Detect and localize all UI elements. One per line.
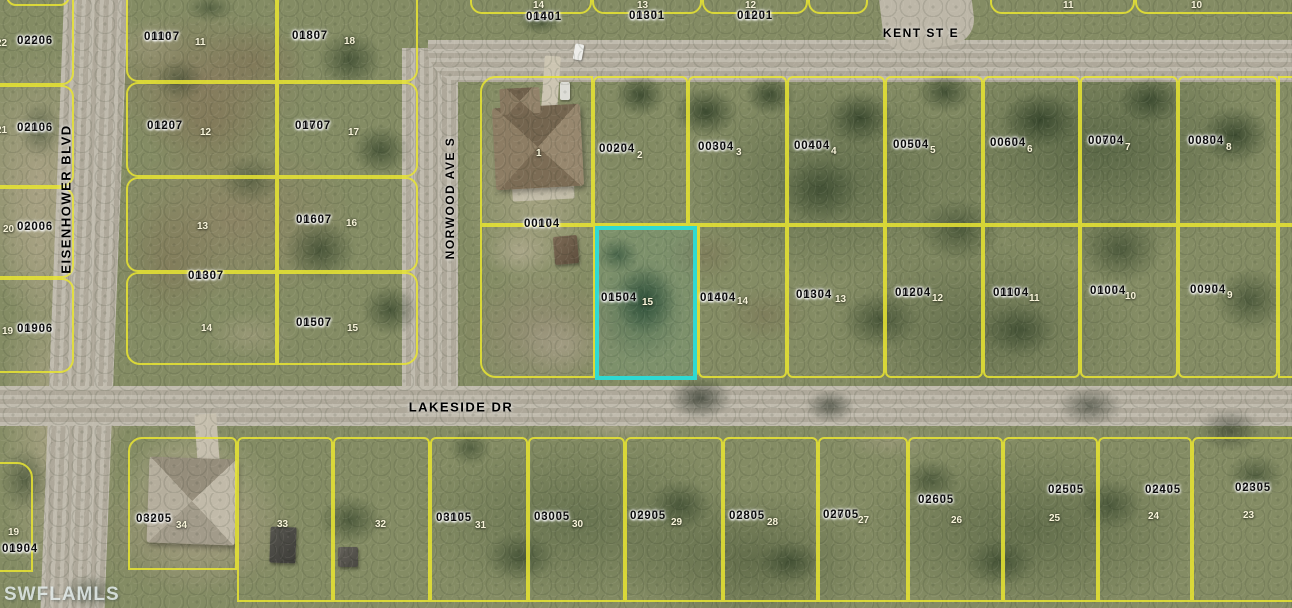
lot-number: 11 xyxy=(1029,293,1040,304)
lot-number: 15 xyxy=(642,297,653,308)
lot-number: 14 xyxy=(533,0,544,11)
lot-number: 1 xyxy=(536,148,542,159)
lot-number: 27 xyxy=(858,515,869,526)
parcel-boundary xyxy=(1098,437,1192,602)
lot-number: 13 xyxy=(197,221,208,232)
lot-number: 30 xyxy=(572,519,583,530)
lot-number: 9 xyxy=(1227,290,1233,301)
lot-number: 23 xyxy=(1243,510,1254,521)
lot-number: 31 xyxy=(475,520,486,531)
parcel-boundary xyxy=(6,0,70,6)
lot-number: 16 xyxy=(346,218,357,229)
lot-number: 10 xyxy=(1191,0,1202,11)
mls-watermark: SWFLAMLS xyxy=(4,584,120,606)
lot-number: 15 xyxy=(347,323,358,334)
road-label-lakeside-dr: LAKESIDE DR xyxy=(409,400,514,415)
lot-number: 4 xyxy=(831,146,837,157)
parcel-boundary xyxy=(126,272,277,365)
lot-number: 24 xyxy=(1148,511,1159,522)
lot-number: 11 xyxy=(195,37,206,48)
lot-number: 26 xyxy=(951,515,962,526)
lot-number: 13 xyxy=(835,294,846,305)
lot-number: 19 xyxy=(8,527,19,538)
lot-number: 25 xyxy=(1049,513,1060,524)
lot-number: 12 xyxy=(745,0,756,11)
road-label-kent-st-e: KENT ST E xyxy=(883,26,959,40)
parcel-boundary xyxy=(1135,0,1292,14)
lot-number: 18 xyxy=(344,36,355,47)
lot-number: 14 xyxy=(737,296,748,307)
lot-number: 11 xyxy=(1063,0,1074,11)
parcel-boundary xyxy=(1178,225,1278,378)
lot-number: 29 xyxy=(671,517,682,528)
lot-number: 10 xyxy=(1125,291,1136,302)
lot-number: 3 xyxy=(736,147,742,158)
satellite-parcel-map[interactable]: 0006602200006602100006602000006601900006… xyxy=(0,0,1292,608)
lot-number: 14 xyxy=(201,323,212,334)
lot-number: 17 xyxy=(348,127,359,138)
road-label-eisenhower-blvd: EISENHOWER BLVD xyxy=(59,124,74,273)
lot-number: 21 xyxy=(0,125,7,136)
lot-number: 5 xyxy=(930,145,936,156)
lot-number: 34 xyxy=(176,520,187,531)
road-label-norwood-ave-s: NORWOOD AVE S xyxy=(443,137,457,260)
lot-number: 19 xyxy=(2,326,13,337)
lot-number: 7 xyxy=(1125,142,1131,153)
lot-number: 33 xyxy=(277,519,288,530)
lot-number: 6 xyxy=(1027,144,1033,155)
lot-number: 2 xyxy=(637,150,643,161)
lot-number: 32 xyxy=(375,519,386,530)
lot-number: 12 xyxy=(200,127,211,138)
parcel-boundary xyxy=(1192,437,1292,602)
parcel-boundary xyxy=(1278,76,1292,225)
lot-number: 12 xyxy=(932,293,943,304)
lot-number: 28 xyxy=(767,517,778,528)
lot-number: 20 xyxy=(3,224,14,235)
parcel-boundary xyxy=(1278,225,1292,378)
lot-number: 22 xyxy=(0,38,7,49)
parcel-boundary xyxy=(808,0,868,14)
lot-number: 8 xyxy=(1226,142,1232,153)
parcel-boundary xyxy=(128,437,237,570)
parcel-boundary xyxy=(480,225,595,378)
lot-number: 13 xyxy=(637,0,648,11)
